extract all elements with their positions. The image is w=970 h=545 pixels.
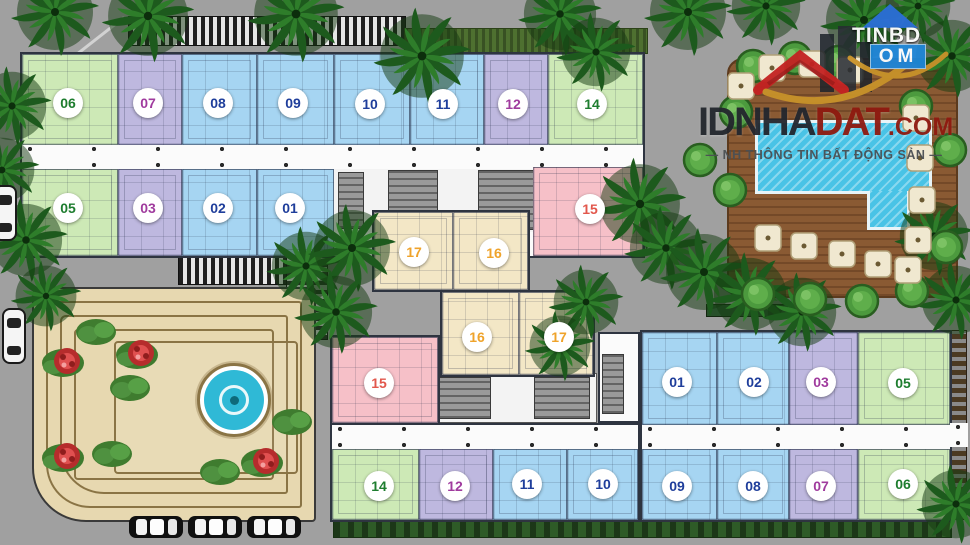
corner-logo-box-text: OM	[879, 46, 918, 68]
brand-suffix: .COM	[888, 113, 953, 141]
logo-art	[0, 0, 970, 545]
brand-logo: IDNHADAT.COM	[698, 100, 958, 145]
watermark-layer: TINBD OM IDNHADAT.COM — NH THÔNG TIN BẤT…	[0, 0, 970, 545]
brand-tagline: — NH THÔNG TIN BẤT ĐỘNG SẢN —	[684, 148, 964, 162]
site-plan-scene: 0607080910111214050302011517161617150102…	[0, 0, 970, 545]
brand-accent: DAT	[815, 100, 888, 144]
corner-logo-box: OM	[870, 44, 926, 69]
brand-prefix: IDNHA	[698, 100, 815, 144]
